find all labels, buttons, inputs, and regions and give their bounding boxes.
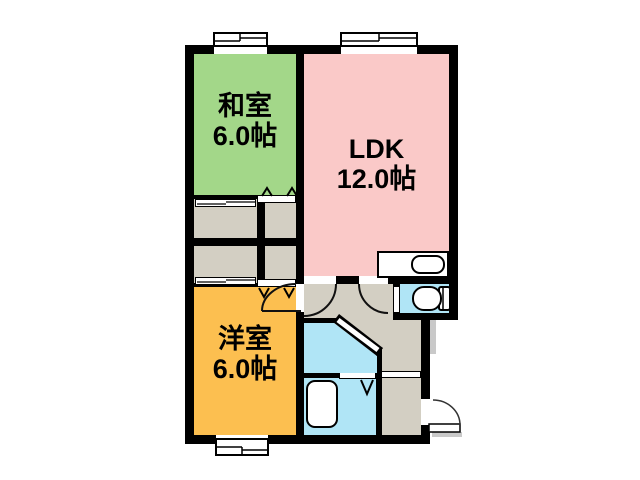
floorplan: 和室 6.0帖 LDK 12.0帖 洋室 6.0帖 bbox=[0, 0, 640, 480]
folding-door-washitsu-closet bbox=[257, 195, 296, 203]
door-opening-toilet bbox=[394, 287, 399, 312]
window-youshitsu bbox=[215, 438, 269, 456]
door-opening-entrance bbox=[421, 399, 430, 425]
sliding-door-closet-bottom bbox=[195, 277, 256, 285]
door-leaf-shadow bbox=[432, 432, 462, 437]
kitchen-sink bbox=[411, 255, 445, 274]
wall-closet-mid-v bbox=[257, 197, 265, 282]
outer-wall-left bbox=[185, 45, 194, 444]
bathtub bbox=[306, 380, 338, 428]
wall-shadow-right bbox=[430, 320, 436, 354]
bath-door-strip bbox=[339, 372, 376, 379]
wall-bath-entrance bbox=[376, 348, 382, 435]
wall-washitsu-ldk bbox=[296, 54, 304, 284]
entrance-step bbox=[381, 371, 421, 378]
window-washitsu bbox=[213, 32, 268, 47]
label-ldk: LDK 12.0帖 bbox=[304, 134, 449, 194]
sliding-door-closet-top bbox=[195, 199, 256, 207]
wall-youshitsu-hall bbox=[296, 312, 304, 436]
wall-closet-mid-h bbox=[194, 238, 296, 246]
label-ldk-size: 12.0帖 bbox=[304, 164, 449, 194]
entrance-door-arc bbox=[433, 400, 460, 425]
wall-washroom-bath bbox=[304, 373, 340, 378]
label-youshitsu: 洋室 6.0帖 bbox=[194, 324, 296, 384]
window-ldk bbox=[340, 32, 418, 47]
label-washitsu-size: 6.0帖 bbox=[194, 121, 296, 151]
label-ldk-name: LDK bbox=[304, 134, 449, 164]
door-opening-youshitsu bbox=[296, 284, 304, 312]
toilet-room bbox=[400, 284, 449, 313]
label-washitsu-name: 和室 bbox=[194, 91, 296, 121]
entrance-door-leaf bbox=[429, 424, 460, 432]
label-youshitsu-name: 洋室 bbox=[194, 324, 296, 354]
wall-washroom-top bbox=[304, 318, 340, 323]
label-washitsu: 和室 6.0帖 bbox=[194, 91, 296, 151]
label-youshitsu-size: 6.0帖 bbox=[194, 354, 296, 384]
door-opening-ldk-1 bbox=[304, 276, 336, 284]
folding-door-youshitsu-closet bbox=[257, 279, 296, 287]
